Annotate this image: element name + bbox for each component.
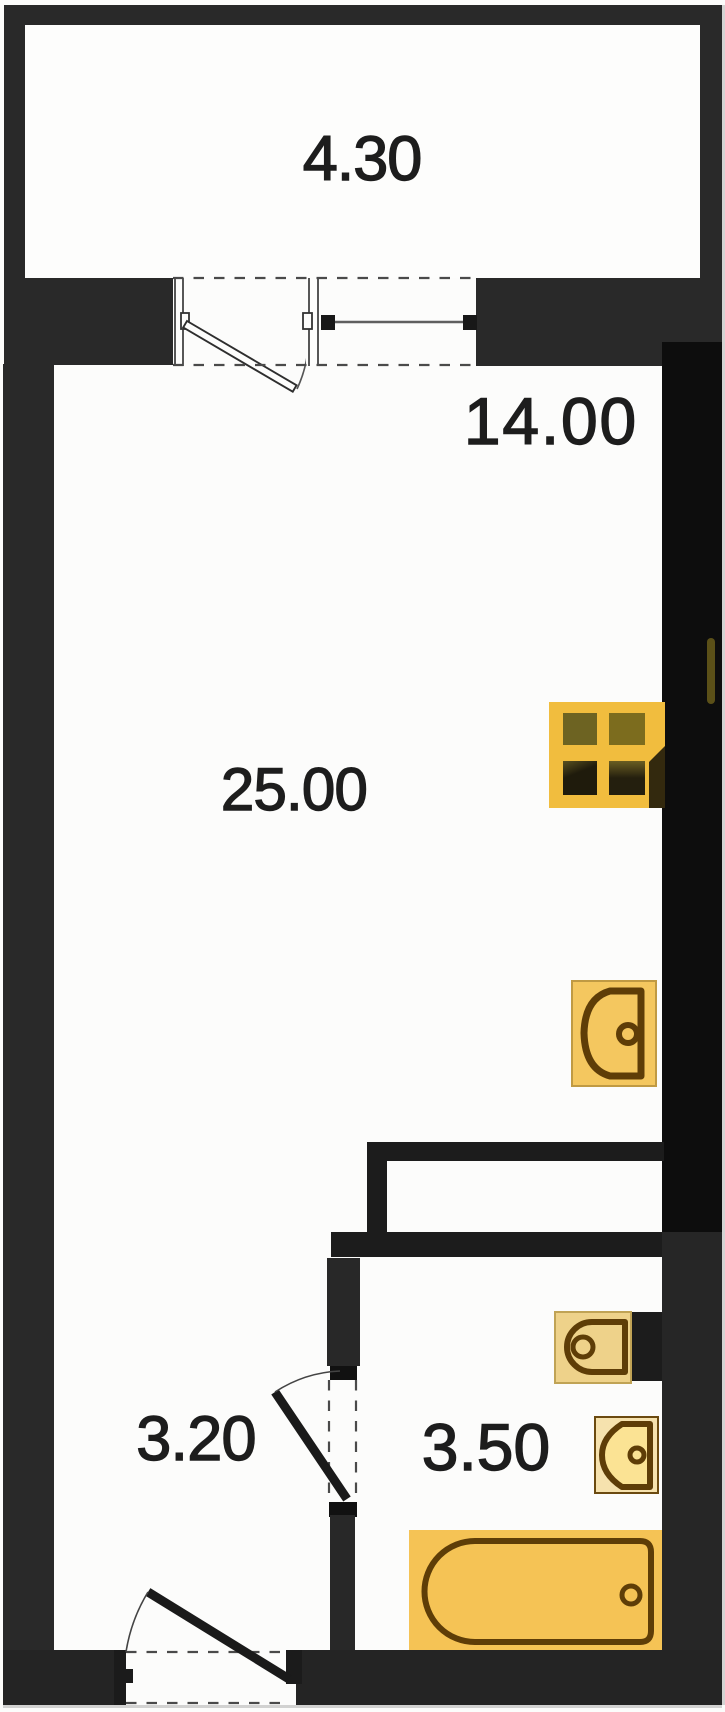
svg-text:14.00: 14.00: [464, 384, 638, 458]
svg-text:25.00: 25.00: [221, 756, 367, 823]
svg-text:3.20: 3.20: [136, 1404, 255, 1474]
svg-text:3.50: 3.50: [422, 1410, 550, 1484]
svg-text:4.30: 4.30: [303, 124, 422, 194]
